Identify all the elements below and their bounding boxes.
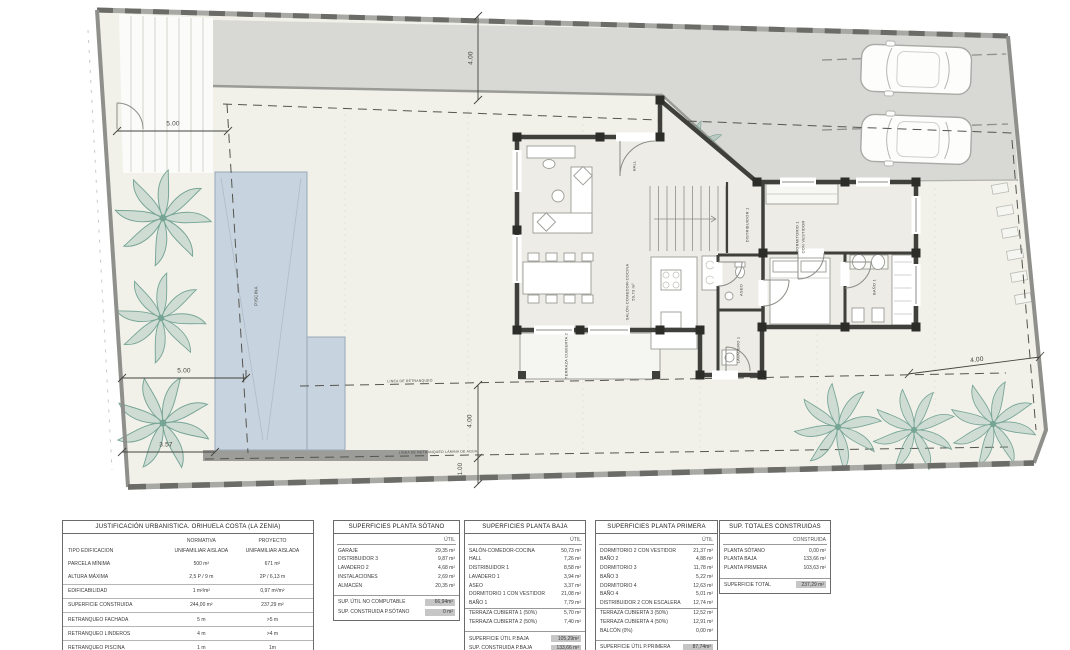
cell-value: 50,73 m² [561, 548, 581, 554]
cell-label: GARAJE [338, 548, 361, 554]
table-row: RETRANQUEO LINDEROS4 m>4 m [63, 626, 313, 640]
table-section: PLANTA SÓTANO0,00 m²PLANTA BAJA133,66 m²… [720, 546, 830, 572]
table-row: BAÑO 17,79 m² [465, 599, 585, 608]
cell-label: SUPERFICIE CONSTRUIDA [68, 602, 166, 608]
cell-label: DISTRIBUIDOR 3 [338, 556, 381, 562]
cell-value: 0,97 m²/m² [237, 588, 308, 594]
table-superficies-baja: SUPERFICIES PLANTA BAJA ÚTILSALÓN-COMEDO… [464, 520, 586, 650]
table-row: ÚTIL [337, 535, 456, 545]
table-row: SALÓN-COMEDOR-COCINA50,73 m² [465, 546, 585, 555]
cell-value: 244,00 m² [166, 602, 237, 608]
cell-label: SUP. ÚTIL NO COMPUTABLE [338, 599, 408, 605]
table-row: DISTRIBUIDOR 39,87 m² [334, 555, 459, 564]
cell-value: PROYECTO [237, 538, 308, 544]
cell-value: 671 m² [237, 561, 308, 567]
table-row: BALCÓN (0%)0,00 m² [596, 626, 717, 635]
table-row: RETRANQUEO FACHADA5 m>5 m [63, 612, 313, 626]
cell-label: SUPERFICIE TOTAL [724, 582, 774, 588]
table-row: ASEO3,37 m² [465, 581, 585, 590]
table-row: ÚTIL [599, 535, 714, 545]
cell-label: TERRAZA CUBIERTA 1 (50%) [469, 610, 540, 616]
cell-label: BAÑO 3 [600, 574, 621, 580]
cell-value: ÚTIL [702, 537, 713, 543]
table-row: DORMITORIO 2 CON VESTIDOR21,37 m² [596, 546, 717, 555]
cell-value: 5,22 m² [696, 574, 713, 580]
cell-value: NORMATIVA [166, 538, 237, 544]
cell-value: 3,94 m² [564, 574, 581, 580]
cell-value: 12,52 m² [693, 610, 713, 616]
entrance-walkway [117, 14, 213, 173]
cell-value: UNIFAMILIAR AISLADA [237, 548, 308, 554]
table-row: CONSTRUIDA [723, 535, 827, 545]
cell-label: HALL [469, 556, 485, 562]
table-superficies-totales: SUP. TOTALES CONSTRUIDAS CONSTRUIDAPLANT… [719, 520, 831, 594]
cell-value: 7,79 m² [564, 600, 581, 606]
cell-value: 103,63 m² [803, 565, 826, 571]
cell-label: DORMITORIO 4 [600, 583, 640, 589]
table-row: TERRAZA CUBIERTA 4 (50%)12,91 m² [596, 617, 717, 626]
cell-value: 133,66 m² [803, 556, 826, 562]
cell-value: 1 m [166, 645, 237, 650]
cell-value: 21,37 m² [693, 548, 713, 554]
cell-value: 0,00 m² [809, 548, 826, 554]
cell-value: ÚTIL [444, 537, 455, 543]
cell-value: 66,94m² [425, 599, 455, 606]
cell-value: 12,63 m² [693, 583, 713, 589]
table-row: SUPERFICIE ÚTIL P.BAJA105,29m² [465, 634, 585, 644]
cell-value: 237,29 m² [237, 602, 308, 608]
cell-value: 1 m²/m² [166, 588, 237, 594]
cell-label: SUP. CONSTRUIDA P.SÓTANO [338, 609, 412, 615]
table-row: TERRAZA CUBIERTA 1 (50%)5,70 m² [465, 609, 585, 618]
table-row: LAVADERO 13,94 m² [465, 573, 585, 582]
table-row: DISTRIBUIDOR 2 CON ESCALERA12,74 m² [596, 599, 717, 608]
cell-label: BAÑO 4 [600, 591, 621, 597]
cell-value: 12,74 m² [693, 600, 713, 606]
cell-value: 4 m [166, 631, 237, 637]
cell-value: 2,5 P / 9 m [166, 574, 237, 580]
table-row: SUP. CONSTRUIDA P.BAJA133,66 m² [465, 644, 585, 650]
cell-value: 12,91 m² [693, 619, 713, 625]
cell-label: DORMITORIO 3 [600, 565, 640, 571]
table-row: PLANTA PRIMERA103,63 m² [720, 564, 830, 573]
cell-value: >5 m [237, 617, 308, 623]
table-section: DORMITORIO 2 CON VESTIDOR21,37 m²BAÑO 24… [596, 546, 717, 607]
table-row: GARAJE29,35 m² [334, 546, 459, 555]
cell-label: EDIFICABILIDAD [68, 588, 166, 594]
cell-label: PLANTA PRIMERA [724, 565, 770, 571]
table-section: TERRAZA CUBIERTA 1 (50%)5,70 m²TERRAZA C… [465, 608, 585, 627]
table-row: PLANTA SÓTANO0,00 m² [720, 546, 830, 555]
cell-value: 11,78 m² [694, 565, 713, 571]
table-row: TERRAZA CUBIERTA 2 (50%)7,40 m² [465, 617, 585, 626]
cell-value: 5,70 m² [564, 610, 581, 616]
cell-value: 20,35 m² [435, 583, 455, 589]
table-justificacion-urbanistica: JUSTIFICACIÓN URBANISTICA. ORIHUELA COST… [62, 520, 314, 650]
cell-value: 133,66 m² [551, 645, 581, 650]
table-row: DISTRIBUIDOR 18,58 m² [465, 564, 585, 573]
table-row: ALMACÉN20,35 m² [334, 581, 459, 590]
cell-value: 0,00 m² [696, 628, 713, 634]
cell-label: RETRANQUEO PISCINA [68, 645, 166, 650]
table-section: SALÓN-COMEDOR-COCINA50,73 m²HALL7,26 m²D… [465, 546, 585, 607]
cell-value: 87,74m² [683, 644, 713, 650]
cell-label: SALÓN-COMEDOR-COCINA [469, 548, 538, 554]
table-title: SUPERFICIES PLANTA PRIMERA [596, 521, 717, 534]
table-row: ALTURA MÁXIMA2,5 P / 9 m2P / 6,13 m [63, 570, 313, 583]
table-footer: SUPERFICIE TOTAL237,29 m² [720, 578, 830, 590]
table-row: HALL7,26 m² [465, 555, 585, 564]
table-row: BAÑO 35,22 m² [596, 573, 717, 582]
table-row: RETRANQUEO PISCINA1 m1m [63, 640, 313, 650]
table-section: GARAJE29,35 m²DISTRIBUIDOR 39,87 m²LAVAD… [334, 546, 459, 590]
table-superficies-primera: SUPERFICIES PLANTA PRIMERA ÚTILDORMITORI… [595, 520, 718, 650]
table-row: PARCELA MÍNIMA500 m²671 m² [63, 557, 313, 570]
table-row: SUPERFICIE CONSTRUIDA244,00 m²237,29 m² [63, 598, 313, 612]
table-footer: SUPERFICIE ÚTIL P.BAJA105,29m²SUP. CONST… [465, 631, 585, 650]
table-row: TERRAZA CUBIERTA 3 (50%)12,52 m² [596, 609, 717, 618]
cell-label: ASEO [469, 583, 486, 589]
cell-label: BAÑO 2 [600, 556, 621, 562]
table-footer: SUP. ÚTIL NO COMPUTABLE66,94m²SUP. CONST… [334, 595, 459, 617]
cell-value: 7,26 m² [564, 556, 581, 562]
cell-label: PLANTA BAJA [724, 556, 760, 562]
cell-label: ALTURA MÁXIMA [68, 574, 166, 580]
cell-value: 4,68 m² [438, 565, 455, 571]
table-row: SUPERFICIE ÚTIL P.PRIMERA87,74m² [596, 643, 717, 650]
cell-value: 21,08 m² [561, 591, 581, 597]
table-row: SUP. ÚTIL NO COMPUTABLE66,94m² [334, 598, 459, 608]
cell-label: RETRANQUEO LINDEROS [68, 631, 166, 637]
cell-value: UNIFAMILIAR AISLADA [166, 548, 237, 554]
cell-value: 9,87 m² [438, 556, 455, 562]
cell-value: 1m [237, 645, 308, 650]
cell-value: 105,29m² [551, 635, 581, 642]
cell-label: INSTALACIONES [338, 574, 381, 580]
table-row: BAÑO 45,01 m² [596, 590, 717, 599]
table-footer: SUPERFICIE ÚTIL P.PRIMERA87,74m²SUP. CON… [596, 640, 717, 650]
cell-value: 5,01 m² [696, 591, 713, 597]
cell-value: 2P / 6,13 m [237, 574, 308, 580]
cell-value: 29,35 m² [435, 548, 455, 554]
table-row: DORMITORIO 311,78 m² [596, 564, 717, 573]
cell-value: 500 m² [166, 561, 237, 567]
table-row: DORMITORIO 412,63 m² [596, 581, 717, 590]
table-title: SUPERFICIES PLANTA SÓTANO [334, 521, 459, 534]
cell-label: LAVADERO 2 [338, 565, 372, 571]
table-row: INSTALACIONES2,69 m² [334, 573, 459, 582]
cell-label: SUPERFICIE ÚTIL P.BAJA [469, 636, 532, 642]
cell-value: 3,37 m² [564, 583, 581, 589]
table-section: TERRAZA CUBIERTA 3 (50%)12,52 m²TERRAZA … [596, 608, 717, 635]
cell-value: 2,69 m² [438, 574, 455, 580]
table-row: TIPO EDIFICACIONUNIFAMILIAR AISLADAUNIFA… [63, 544, 313, 557]
table-row: NORMATIVAPROYECTO [63, 535, 313, 544]
cell-label: TERRAZA CUBIERTA 3 (50%) [600, 610, 671, 616]
cell-value: 8,58 m² [564, 565, 581, 571]
cell-value: 7,40 m² [564, 619, 581, 625]
cell-label: RETRANQUEO FACHADA [68, 617, 166, 623]
table-row: DORMITORIO 1 CON VESTIDOR21,08 m² [465, 590, 585, 599]
cell-label: LAVADERO 1 [469, 574, 503, 580]
table-title: SUPERFICIES PLANTA BAJA [465, 521, 585, 534]
cell-value: >4 m [237, 631, 308, 637]
cell-label: TERRAZA CUBIERTA 2 (50%) [469, 619, 540, 625]
table-row: EDIFICABILIDAD1 m²/m²0,97 m²/m² [63, 584, 313, 598]
table-row: ÚTIL [468, 535, 582, 545]
cell-label: BAÑO 1 [469, 600, 490, 606]
table-row: PLANTA BAJA133,66 m² [720, 555, 830, 564]
table-row: BAÑO 24,88 m² [596, 555, 717, 564]
table-title: JUSTIFICACIÓN URBANISTICA. ORIHUELA COST… [63, 521, 313, 534]
table-row: SUPERFICIE TOTAL237,29 m² [720, 580, 830, 590]
cell-label: DORMITORIO 2 CON VESTIDOR [600, 548, 679, 554]
cell-label: TERRAZA CUBIERTA 4 (50%) [600, 619, 671, 625]
cell-label: TIPO EDIFICACION [68, 548, 166, 554]
cell-value: 237,29 m² [796, 581, 826, 588]
cell-label: SUP. CONSTRUIDA P.BAJA [469, 645, 535, 650]
cell-label: SUPERFICIE ÚTIL P.PRIMERA [600, 644, 673, 650]
cell-value: 0 m² [425, 609, 455, 616]
cell-label: PLANTA SÓTANO [724, 548, 768, 554]
table-title: SUP. TOTALES CONSTRUIDAS [720, 521, 830, 534]
cell-value: 4,88 m² [696, 556, 713, 562]
cell-value: ÚTIL [570, 537, 581, 543]
cell-label: DISTRIBUIDOR 1 [469, 565, 512, 571]
table-row: LAVADERO 24,68 m² [334, 564, 459, 573]
cell-label: BALCÓN (0%) [600, 628, 636, 634]
architectural-site-plan: 4.005.005.003.574.001.004.00LÍNEA DE RET… [0, 0, 1070, 650]
table-row: SUP. CONSTRUIDA P.SÓTANO0 m² [334, 607, 459, 617]
table-superficies-sotano: SUPERFICIES PLANTA SÓTANO ÚTILGARAJE29,3… [333, 520, 460, 621]
cell-label: DORMITORIO 1 CON VESTIDOR [469, 591, 548, 597]
cell-label: ALMACÉN [338, 583, 365, 589]
cell-label: PARCELA MÍNIMA [68, 561, 166, 567]
cell-label: DISTRIBUIDOR 2 CON ESCALERA [600, 600, 684, 606]
cell-value: CONSTRUIDA [793, 537, 826, 543]
cell-value: 5 m [166, 617, 237, 623]
